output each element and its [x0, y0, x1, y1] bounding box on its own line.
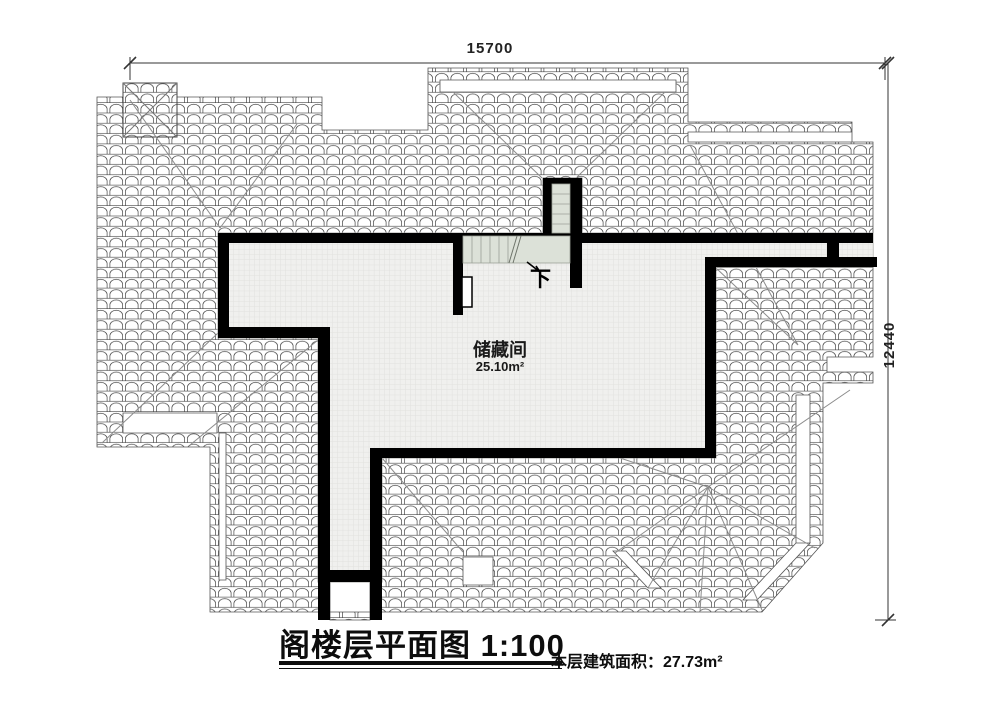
drawing-title: 阁楼层平面图 1:100: [279, 620, 565, 665]
wall-right-stub: [705, 257, 877, 267]
wall-stair-shaft-left: [543, 178, 552, 238]
stair-down-label: 下: [530, 263, 551, 293]
floor-plan-page: 15700 12440 储藏间 25.10m² 下 阁楼层平面图 1:100 本…: [0, 0, 1000, 706]
wall-corridor-left: [318, 327, 330, 620]
room-area-label: 25.10m²: [440, 359, 560, 374]
title-underline-thick: [279, 661, 562, 665]
floor-area-label: 本层建筑面积：27.73m²: [551, 648, 723, 672]
wall-left-step: [218, 327, 330, 338]
stair-shaft-treads: [552, 184, 570, 233]
wall-left: [218, 233, 229, 338]
wall-corridor-right: [370, 448, 382, 620]
dimension-height-label: 12440: [863, 316, 915, 374]
wall-stair-shaft-right: [570, 178, 582, 288]
wall-bottom: [370, 448, 716, 458]
title-underline-thin: [279, 668, 562, 669]
dimension-width-label: 15700: [430, 40, 550, 57]
wall-right: [705, 257, 716, 458]
stair-door: [462, 277, 472, 307]
